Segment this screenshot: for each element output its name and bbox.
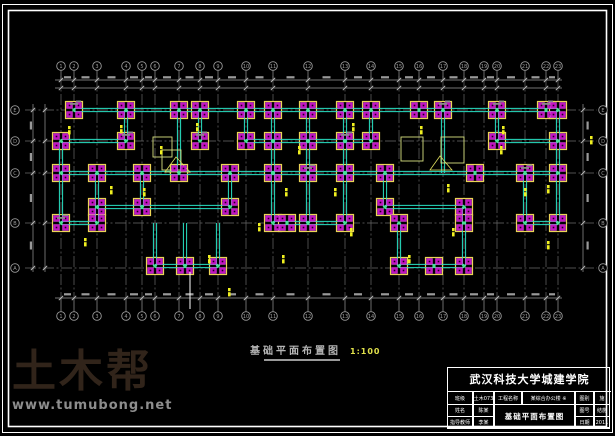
pile-dot [277, 227, 279, 229]
pile-dot [92, 168, 94, 170]
pile-dot [101, 177, 103, 179]
pile-dot [468, 270, 470, 272]
pile-dot [366, 145, 368, 147]
beam-tag [352, 127, 355, 131]
titleblock-type-value: 施 [594, 391, 610, 405]
pile-dot [349, 168, 351, 170]
pile-dot [349, 145, 351, 147]
pile-dot [183, 114, 185, 116]
pile-dot [130, 145, 132, 147]
axis-bubbles: 1122334455667788991010111112121313141415… [11, 62, 608, 321]
dim-number-blob [228, 76, 236, 78]
axis-bubble-label: 2 [72, 64, 75, 70]
leader-mark [202, 132, 207, 134]
axis-bubble-label: 20 [494, 314, 500, 320]
pile-dot [312, 218, 314, 220]
cap-center-node [177, 108, 180, 111]
axis-bubble-label: 13 [342, 314, 348, 320]
dim-number-blob [532, 293, 540, 295]
cap-center-node [59, 221, 62, 224]
pile-dot [459, 218, 461, 220]
dim-number-blob [323, 76, 331, 78]
pile-dot [312, 177, 314, 179]
pile-dot [241, 105, 243, 107]
pile-dot [459, 211, 461, 213]
dim-number-blob [405, 76, 413, 78]
title-underline [264, 359, 340, 361]
pile-dot [277, 168, 279, 170]
axis-bubble-label: 8 [198, 64, 201, 70]
pile-dot [414, 114, 416, 116]
cap-center-node [544, 108, 547, 111]
cap-center-node [72, 108, 75, 111]
pile-dot [303, 218, 305, 220]
cap-center-node [140, 205, 143, 208]
cap-center-node [462, 221, 465, 224]
dim-number-blob [145, 293, 152, 295]
pile-dot [65, 177, 67, 179]
pile-dot [541, 105, 543, 107]
drawing-title: 基础平面布置图1:100 [250, 339, 380, 358]
pile-dot [250, 145, 252, 147]
pile-dot [303, 105, 305, 107]
pile-dot [180, 270, 182, 272]
cap-center-node [271, 108, 274, 111]
pile-dot [468, 218, 470, 220]
beam-tag [500, 150, 503, 154]
beam-tag [590, 136, 593, 139]
cap-center-node [556, 108, 559, 111]
beam-tag [285, 188, 288, 191]
pile-dot [553, 114, 555, 116]
pile-dot [414, 105, 416, 107]
beam-tag [160, 150, 163, 154]
leader-mark [445, 101, 450, 103]
axis-bubble-label: 18 [461, 64, 467, 70]
beam-tag [334, 188, 337, 191]
pile-dot [459, 270, 461, 272]
pile-dot [403, 261, 405, 263]
pile-dot [468, 261, 470, 263]
pile-dot [529, 218, 531, 220]
pile-dot [101, 168, 103, 170]
pile-dot [174, 105, 176, 107]
pile-dot [492, 105, 494, 107]
beam-tag [196, 123, 199, 126]
pile-dot [234, 202, 236, 204]
titleblock-project-label: 工程名称 [494, 391, 522, 405]
leader-mark [341, 134, 349, 136]
axis-bubble-label: 6 [153, 314, 156, 320]
titleblock-advisor-value: 李某 [473, 416, 494, 429]
pile-dot [121, 114, 123, 116]
pile-dot [268, 168, 270, 170]
dim-number-blob [487, 76, 494, 78]
pile-dot [429, 270, 431, 272]
beam-tag [282, 259, 285, 263]
dim-number-blob [163, 76, 171, 78]
dim-number-blob [587, 242, 589, 250]
pile-dot [468, 202, 470, 204]
leader-mark [63, 215, 68, 217]
axis-bubble-label: 3 [95, 314, 98, 320]
axis-bubble-label: 22 [543, 314, 549, 320]
pile-dot [375, 145, 377, 147]
cap-center-node [271, 139, 274, 142]
axis-bubble-label: D [601, 139, 605, 145]
dim-number-blob [381, 76, 389, 78]
pile-dot [101, 202, 103, 204]
dim-number-blob [82, 293, 90, 295]
pile-dot [380, 202, 382, 204]
axis-bubble-label: 16 [416, 64, 422, 70]
leader-mark [542, 103, 550, 105]
axis-bubble-label: 12 [305, 314, 311, 320]
cap-center-node [124, 139, 127, 142]
pile-dot [501, 114, 503, 116]
pile-dot [312, 114, 314, 116]
pile-dot [195, 145, 197, 147]
pile-dot [520, 177, 522, 179]
pile-dot [222, 270, 224, 272]
pile-dot [195, 136, 197, 138]
pile-dot [146, 177, 148, 179]
watermark: 土木帮 www.tumubong.net [12, 348, 172, 413]
beam-tag [143, 192, 146, 196]
dim-number-blob [287, 76, 295, 78]
cap-center-node [140, 171, 143, 174]
pile-dot [137, 177, 139, 179]
cap-center-node [556, 171, 559, 174]
dim-number-blob [427, 293, 435, 295]
pile-dot [204, 105, 206, 107]
axis-bubble-label: 5 [140, 64, 143, 70]
dim-number-blob [381, 293, 389, 295]
pile-dot [459, 227, 461, 229]
pile-dot [501, 136, 503, 138]
dim-number-blob [587, 122, 589, 130]
dim-number-blob [427, 76, 435, 78]
pile-dot [195, 114, 197, 116]
cap-center-node [198, 139, 201, 142]
cap-center-node [556, 139, 559, 142]
cap-center-node [556, 221, 559, 224]
cap-center-node [244, 139, 247, 142]
dim-number-blob [354, 293, 362, 295]
pile-dot [541, 114, 543, 116]
cap-center-node [417, 108, 420, 111]
pile-dot [479, 168, 481, 170]
beam-tag [84, 238, 87, 241]
dim-number-blob [532, 76, 540, 78]
pile-dot [468, 211, 470, 213]
axis-bubble-label: 6 [153, 64, 156, 70]
pile-dot [56, 227, 58, 229]
cap-center-node [495, 108, 498, 111]
axis-bubble-label: 15 [396, 64, 402, 70]
pile-dot [204, 114, 206, 116]
cap-center-node [59, 139, 62, 142]
leader-mark [57, 217, 65, 219]
axis-bubble-label: 21 [522, 314, 528, 320]
pile-dot [423, 105, 425, 107]
pile-dot [312, 136, 314, 138]
pile-dot [159, 270, 161, 272]
pile-dot [268, 227, 270, 229]
pile-dot [78, 114, 80, 116]
pile-dot [101, 227, 103, 229]
axis-bubble-label: 14 [368, 64, 374, 70]
cap-center-node [306, 139, 309, 142]
beam-tag [547, 241, 550, 244]
leader-mark [527, 165, 532, 167]
pile-dot [213, 270, 215, 272]
axis-bubble-label: A [601, 266, 605, 272]
axis-bubble-label: 12 [305, 64, 311, 70]
leader-mark [76, 101, 81, 103]
titleblock-school: 武汉科技大学城建学院 [448, 368, 611, 392]
pile-dot [366, 105, 368, 107]
dim-number-blob [549, 293, 555, 295]
pile-dot [277, 105, 279, 107]
pile-dot [277, 218, 279, 220]
pile-dot [78, 105, 80, 107]
cap-center-node [343, 171, 346, 174]
cap-center-node [95, 221, 98, 224]
pile-dot [189, 261, 191, 263]
cap-center-node [306, 221, 309, 224]
cap-center-node [473, 171, 476, 174]
pile-dot [250, 114, 252, 116]
cap-center-node [285, 221, 288, 224]
pile-dot [225, 211, 227, 213]
pile-dot [291, 218, 293, 220]
titleblock-figure-value: 基础平面布置图 [494, 404, 575, 429]
pile-dot [447, 105, 449, 107]
leader-mark [70, 103, 78, 105]
beam-tag [110, 190, 113, 194]
cap-center-node [228, 205, 231, 208]
leader-mark [548, 101, 553, 103]
pile-dot [459, 261, 461, 263]
pile-dot [277, 136, 279, 138]
beam-tag [196, 127, 199, 131]
leader-mark [439, 103, 447, 105]
pile-dot [121, 105, 123, 107]
pile-dot [349, 114, 351, 116]
cap-center-node [228, 171, 231, 174]
pile-dot [429, 261, 431, 263]
pile-dot [389, 211, 391, 213]
pile-dot [389, 202, 391, 204]
cap-center-node [369, 139, 372, 142]
pile-dot [492, 145, 494, 147]
pile-dot [380, 168, 382, 170]
pile-dot [250, 105, 252, 107]
axis-bubble-label: 15 [396, 314, 402, 320]
pile-dot [268, 105, 270, 107]
cap-center-node [95, 205, 98, 208]
pile-dot [501, 105, 503, 107]
pile-dot [241, 145, 243, 147]
beam-tag [285, 192, 288, 196]
dim-number-blob [587, 194, 589, 202]
pile-dot [562, 136, 564, 138]
beam-tag [502, 126, 505, 129]
pile-dot [529, 177, 531, 179]
pile-dot [225, 202, 227, 204]
pile-dot [222, 261, 224, 263]
pile-dot [277, 114, 279, 116]
pile-dot [468, 227, 470, 229]
pile-dot [553, 105, 555, 107]
pile-dot [303, 136, 305, 138]
leader-mark [196, 134, 204, 136]
pile-dot [403, 227, 405, 229]
pile-dot [268, 177, 270, 179]
dim-number-blob [450, 76, 458, 78]
cap-center-node [369, 108, 372, 111]
pile-dot [492, 136, 494, 138]
beam-tag [258, 227, 261, 231]
pile-dot [277, 177, 279, 179]
pile-dot [241, 114, 243, 116]
dim-number-blob [186, 76, 194, 78]
pile-dot [312, 105, 314, 107]
axis-bubble-label: 21 [522, 64, 528, 70]
pile-dot [121, 145, 123, 147]
axis-bubble-label: 17 [440, 314, 446, 320]
pile-dot [375, 105, 377, 107]
beam-tag [68, 130, 71, 134]
pile-dot [250, 136, 252, 138]
pile-dot [146, 168, 148, 170]
dim-number-blob [130, 293, 138, 295]
cap-center-node [523, 171, 526, 174]
pile-dot [303, 177, 305, 179]
beam-tag [350, 228, 353, 231]
beam-tag [452, 232, 455, 236]
axis-bubble-label: 1 [59, 64, 62, 70]
axis-bubble-label: 23 [555, 64, 561, 70]
pile-dot [137, 168, 139, 170]
pile-dot [349, 177, 351, 179]
dim-number-blob [163, 293, 171, 295]
pile-dot [234, 177, 236, 179]
dim-number-blob [470, 293, 478, 295]
cap-center-node [177, 171, 180, 174]
pile-dot [277, 145, 279, 147]
beam-tag [282, 255, 285, 258]
pile-dot [174, 177, 176, 179]
axis-bubble-label: 19 [481, 314, 487, 320]
beam-tag [110, 186, 113, 189]
pile-dot [312, 145, 314, 147]
beam-tag [524, 188, 527, 191]
pile-dot [195, 105, 197, 107]
pile-dot [65, 227, 67, 229]
dim-number-blob [205, 76, 213, 78]
pile-dot [282, 227, 284, 229]
pile-dot [65, 145, 67, 147]
pile-dot [403, 218, 405, 220]
axis-bubble-label: 7 [177, 314, 180, 320]
titleblock-type-label: 图别 [575, 391, 594, 405]
axis-bubble-label: 2 [72, 314, 75, 320]
leader-mark [128, 132, 133, 134]
cap-center-node [244, 108, 247, 111]
pile-dot [562, 105, 564, 107]
pile-dot [380, 211, 382, 213]
pile-dot [394, 270, 396, 272]
dim-number-blob [507, 293, 515, 295]
drawing-title-text: 基础平面布置图 [250, 346, 341, 357]
dim-number-blob [287, 293, 295, 295]
pile-dot [553, 168, 555, 170]
cap-center-node [383, 171, 386, 174]
pile-dot [459, 202, 461, 204]
dim-number-blob [64, 76, 71, 78]
pile-dot [213, 261, 215, 263]
pile-dot [366, 136, 368, 138]
pile-dot [389, 177, 391, 179]
pile-dot [562, 177, 564, 179]
beam-tag [500, 146, 503, 149]
pile-dot [268, 136, 270, 138]
beam-tag [502, 130, 505, 134]
pile-dot [69, 105, 71, 107]
leader-mark [304, 167, 312, 169]
pile-dot [268, 145, 270, 147]
pit-outline-box [401, 137, 423, 161]
pile-dot [303, 114, 305, 116]
axis-bubble-label: 16 [416, 314, 422, 320]
pile-dot [438, 270, 440, 272]
pile-dot [553, 227, 555, 229]
dim-number-blob [30, 242, 32, 250]
pile-dot [225, 177, 227, 179]
cap-center-node [95, 171, 98, 174]
watermark-logo: 土木帮 [12, 348, 172, 396]
pile-dot [56, 168, 58, 170]
cap-center-node [343, 221, 346, 224]
axis-bubble-label: 13 [342, 64, 348, 70]
dim-number-blob [64, 293, 71, 295]
beam-tag [208, 255, 211, 258]
pile-dot [234, 211, 236, 213]
pile-dot [65, 168, 67, 170]
axis-bubble-label: 4 [124, 314, 127, 320]
pile-dot [553, 177, 555, 179]
pile-dot [241, 136, 243, 138]
pile-dot [380, 177, 382, 179]
pile-dot [479, 177, 481, 179]
leader-mark [493, 103, 501, 105]
pile-dot [520, 227, 522, 229]
pile-dot [562, 145, 564, 147]
pile-dot [529, 227, 531, 229]
beam-tag [420, 130, 423, 134]
axis-bubble-label: 11 [270, 314, 276, 320]
pile-dot [303, 145, 305, 147]
pile-dot [403, 270, 405, 272]
beam-tag [160, 146, 163, 149]
axis-bubble-label: 20 [494, 64, 500, 70]
beam-tag [143, 188, 146, 191]
pile-dot [56, 136, 58, 138]
pile-dot [204, 136, 206, 138]
pile-dot [174, 168, 176, 170]
